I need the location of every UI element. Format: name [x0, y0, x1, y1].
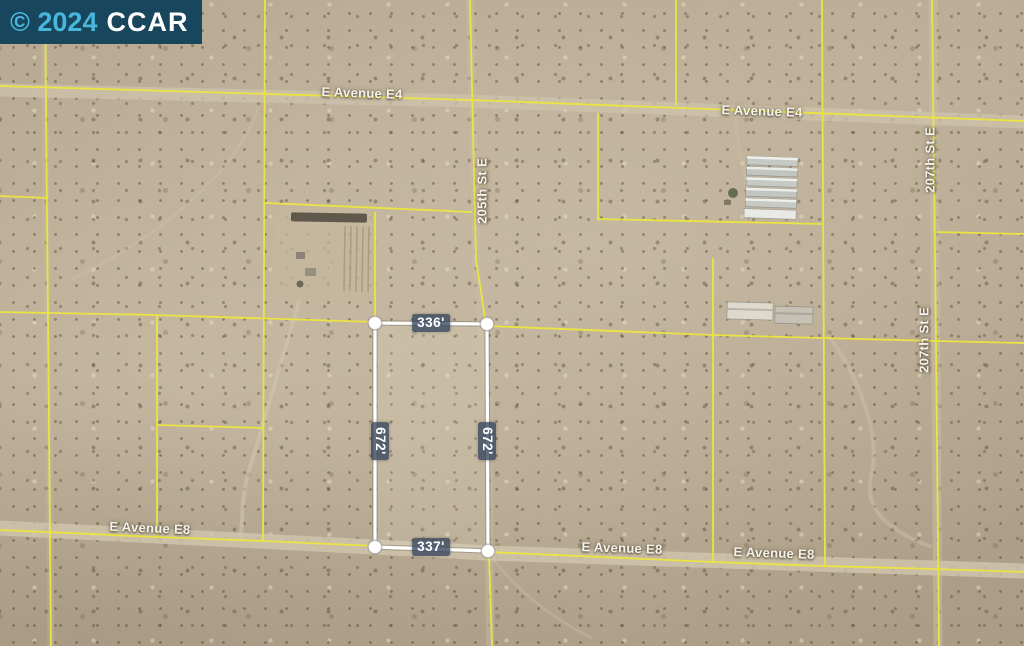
homestead [276, 208, 380, 300]
shrub-near-greenhouse [728, 188, 738, 198]
watermark: © 2024 CCAR [0, 0, 202, 44]
map-overlay-graphics [0, 0, 1024, 646]
homestead-building [291, 212, 367, 222]
street-label-e-avenue-e4-east: E Avenue E4 [721, 102, 803, 120]
watermark-org: CCAR [106, 9, 188, 36]
street-label-207th-st-e-lower: 207th St E [917, 307, 932, 373]
parcel-dim-bottom: 337' [412, 538, 450, 556]
greenhouse-buildings [744, 156, 798, 219]
watermark-year: © 2024 [10, 9, 97, 36]
farm-structures [727, 302, 813, 324]
corner-marker [480, 317, 494, 331]
street-label-e-avenue-e8-east: E Avenue E8 [733, 544, 815, 562]
shed-near-greenhouse [724, 200, 731, 205]
street-label-207th-st-e-upper: 207th St E [923, 127, 938, 193]
parcel-map-screenshot: E Avenue E4 E Avenue E4 205th St E 207th… [0, 0, 1024, 646]
corner-marker [368, 316, 382, 330]
street-label-205th-st-e: 205th St E [475, 158, 490, 224]
street-label-e-avenue-e4-west: E Avenue E4 [321, 84, 403, 102]
road-e-avenue-e4 [0, 90, 1024, 122]
parcel-dim-top: 336' [412, 314, 450, 332]
street-label-e-avenue-e8-center: E Avenue E8 [581, 539, 663, 557]
roads [0, 0, 1024, 646]
parcel-dim-right: 672' [478, 422, 496, 460]
corner-marker [368, 540, 382, 554]
parcel-dim-left: 672' [371, 422, 389, 460]
corner-marker [481, 544, 495, 558]
